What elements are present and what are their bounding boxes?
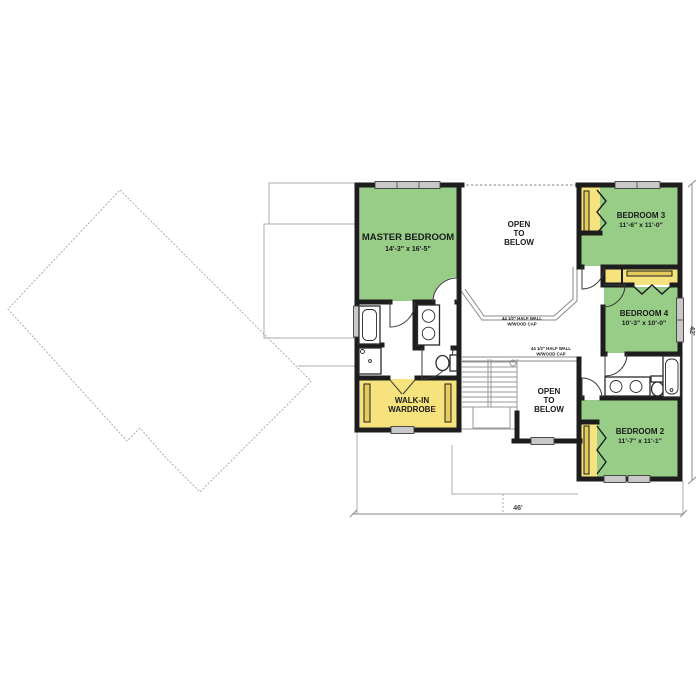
dim-width-label: 46' bbox=[513, 505, 523, 512]
bedroom3-window bbox=[615, 182, 660, 189]
staircase bbox=[459, 359, 517, 429]
open-below-window bbox=[531, 438, 554, 445]
bedroom4-label: BEDROOM 4 bbox=[620, 309, 669, 318]
open-below-top-line3: BELOW bbox=[504, 238, 534, 247]
ensuite-door bbox=[390, 302, 415, 327]
open-below-top-line1: OPEN bbox=[508, 220, 531, 229]
open-below-bottom-line3: BELOW bbox=[534, 405, 564, 414]
ensuite-toilet-tank bbox=[450, 355, 457, 371]
open-below-bottom-line2: TO bbox=[544, 396, 555, 405]
ensuite-toilet-bowl bbox=[436, 356, 449, 371]
dim-height-label: 42' bbox=[688, 326, 695, 336]
half-wall-note2-line2: W/WOOD CAP bbox=[536, 352, 565, 357]
half-wall-bay-inner bbox=[465, 267, 573, 316]
bedroom2-window-left bbox=[604, 476, 626, 483]
bedroom4-dims: 10'-3" x 10'-0" bbox=[622, 320, 666, 327]
linen-closet-rod bbox=[627, 271, 672, 276]
bedroom3-closet-rod bbox=[584, 191, 589, 231]
floor-plan-page: 46' 42' bbox=[0, 0, 700, 700]
wardrobe-rod-right bbox=[445, 384, 451, 422]
wardrobe-window bbox=[391, 427, 414, 434]
master-bedroom-label: MASTER BEDROOM bbox=[362, 232, 454, 243]
bath-toilet-bowl bbox=[652, 382, 664, 396]
bath-toilet-tank bbox=[651, 376, 664, 382]
floor-plan-svg: 46' 42' bbox=[0, 0, 700, 700]
wardrobe-label-line2: WARDROBE bbox=[388, 405, 436, 414]
bedroom3-dims: 11'-6" x 11'-0" bbox=[619, 222, 663, 229]
bathroom-door bbox=[605, 354, 627, 376]
half-walls bbox=[461, 185, 578, 361]
wardrobe-label-line1: WALK-IN bbox=[395, 396, 429, 405]
half-wall-note2-line1: 44 1/2" HALF WALL bbox=[531, 346, 571, 351]
ensuite-shower bbox=[359, 348, 381, 374]
bedroom2-label: BEDROOM 2 bbox=[616, 427, 665, 436]
open-below-top-line2: TO bbox=[514, 229, 525, 238]
half-wall-note1-line1: 44 1/2" HALF WALL bbox=[502, 316, 542, 321]
garage-roof-outline bbox=[8, 190, 311, 492]
master-window bbox=[375, 182, 440, 189]
roof-rect-mid bbox=[264, 224, 357, 338]
ensuite-vanity bbox=[418, 305, 440, 345]
bedroom2-door bbox=[582, 378, 602, 398]
bath-vanity bbox=[605, 377, 650, 396]
bedroom2-window-right bbox=[628, 476, 650, 483]
bedroom2-closet-rod bbox=[584, 426, 589, 474]
roof-rect-top bbox=[269, 183, 357, 224]
half-wall-note1-line2: W/WOOD CAP bbox=[507, 322, 536, 327]
bedroom2-dims: 11'-7" x 11'-1" bbox=[618, 438, 662, 445]
master-bedroom-dims: 14'-3" x 16'-5" bbox=[385, 246, 431, 253]
half-wall-bay-outer bbox=[461, 267, 577, 320]
open-below-bottom-line1: OPEN bbox=[538, 387, 561, 396]
bedroom3-label: BEDROOM 3 bbox=[617, 211, 666, 220]
wardrobe-rod-left bbox=[364, 384, 370, 422]
stair-landing bbox=[473, 407, 510, 428]
porch-outline-bottom bbox=[452, 445, 578, 494]
